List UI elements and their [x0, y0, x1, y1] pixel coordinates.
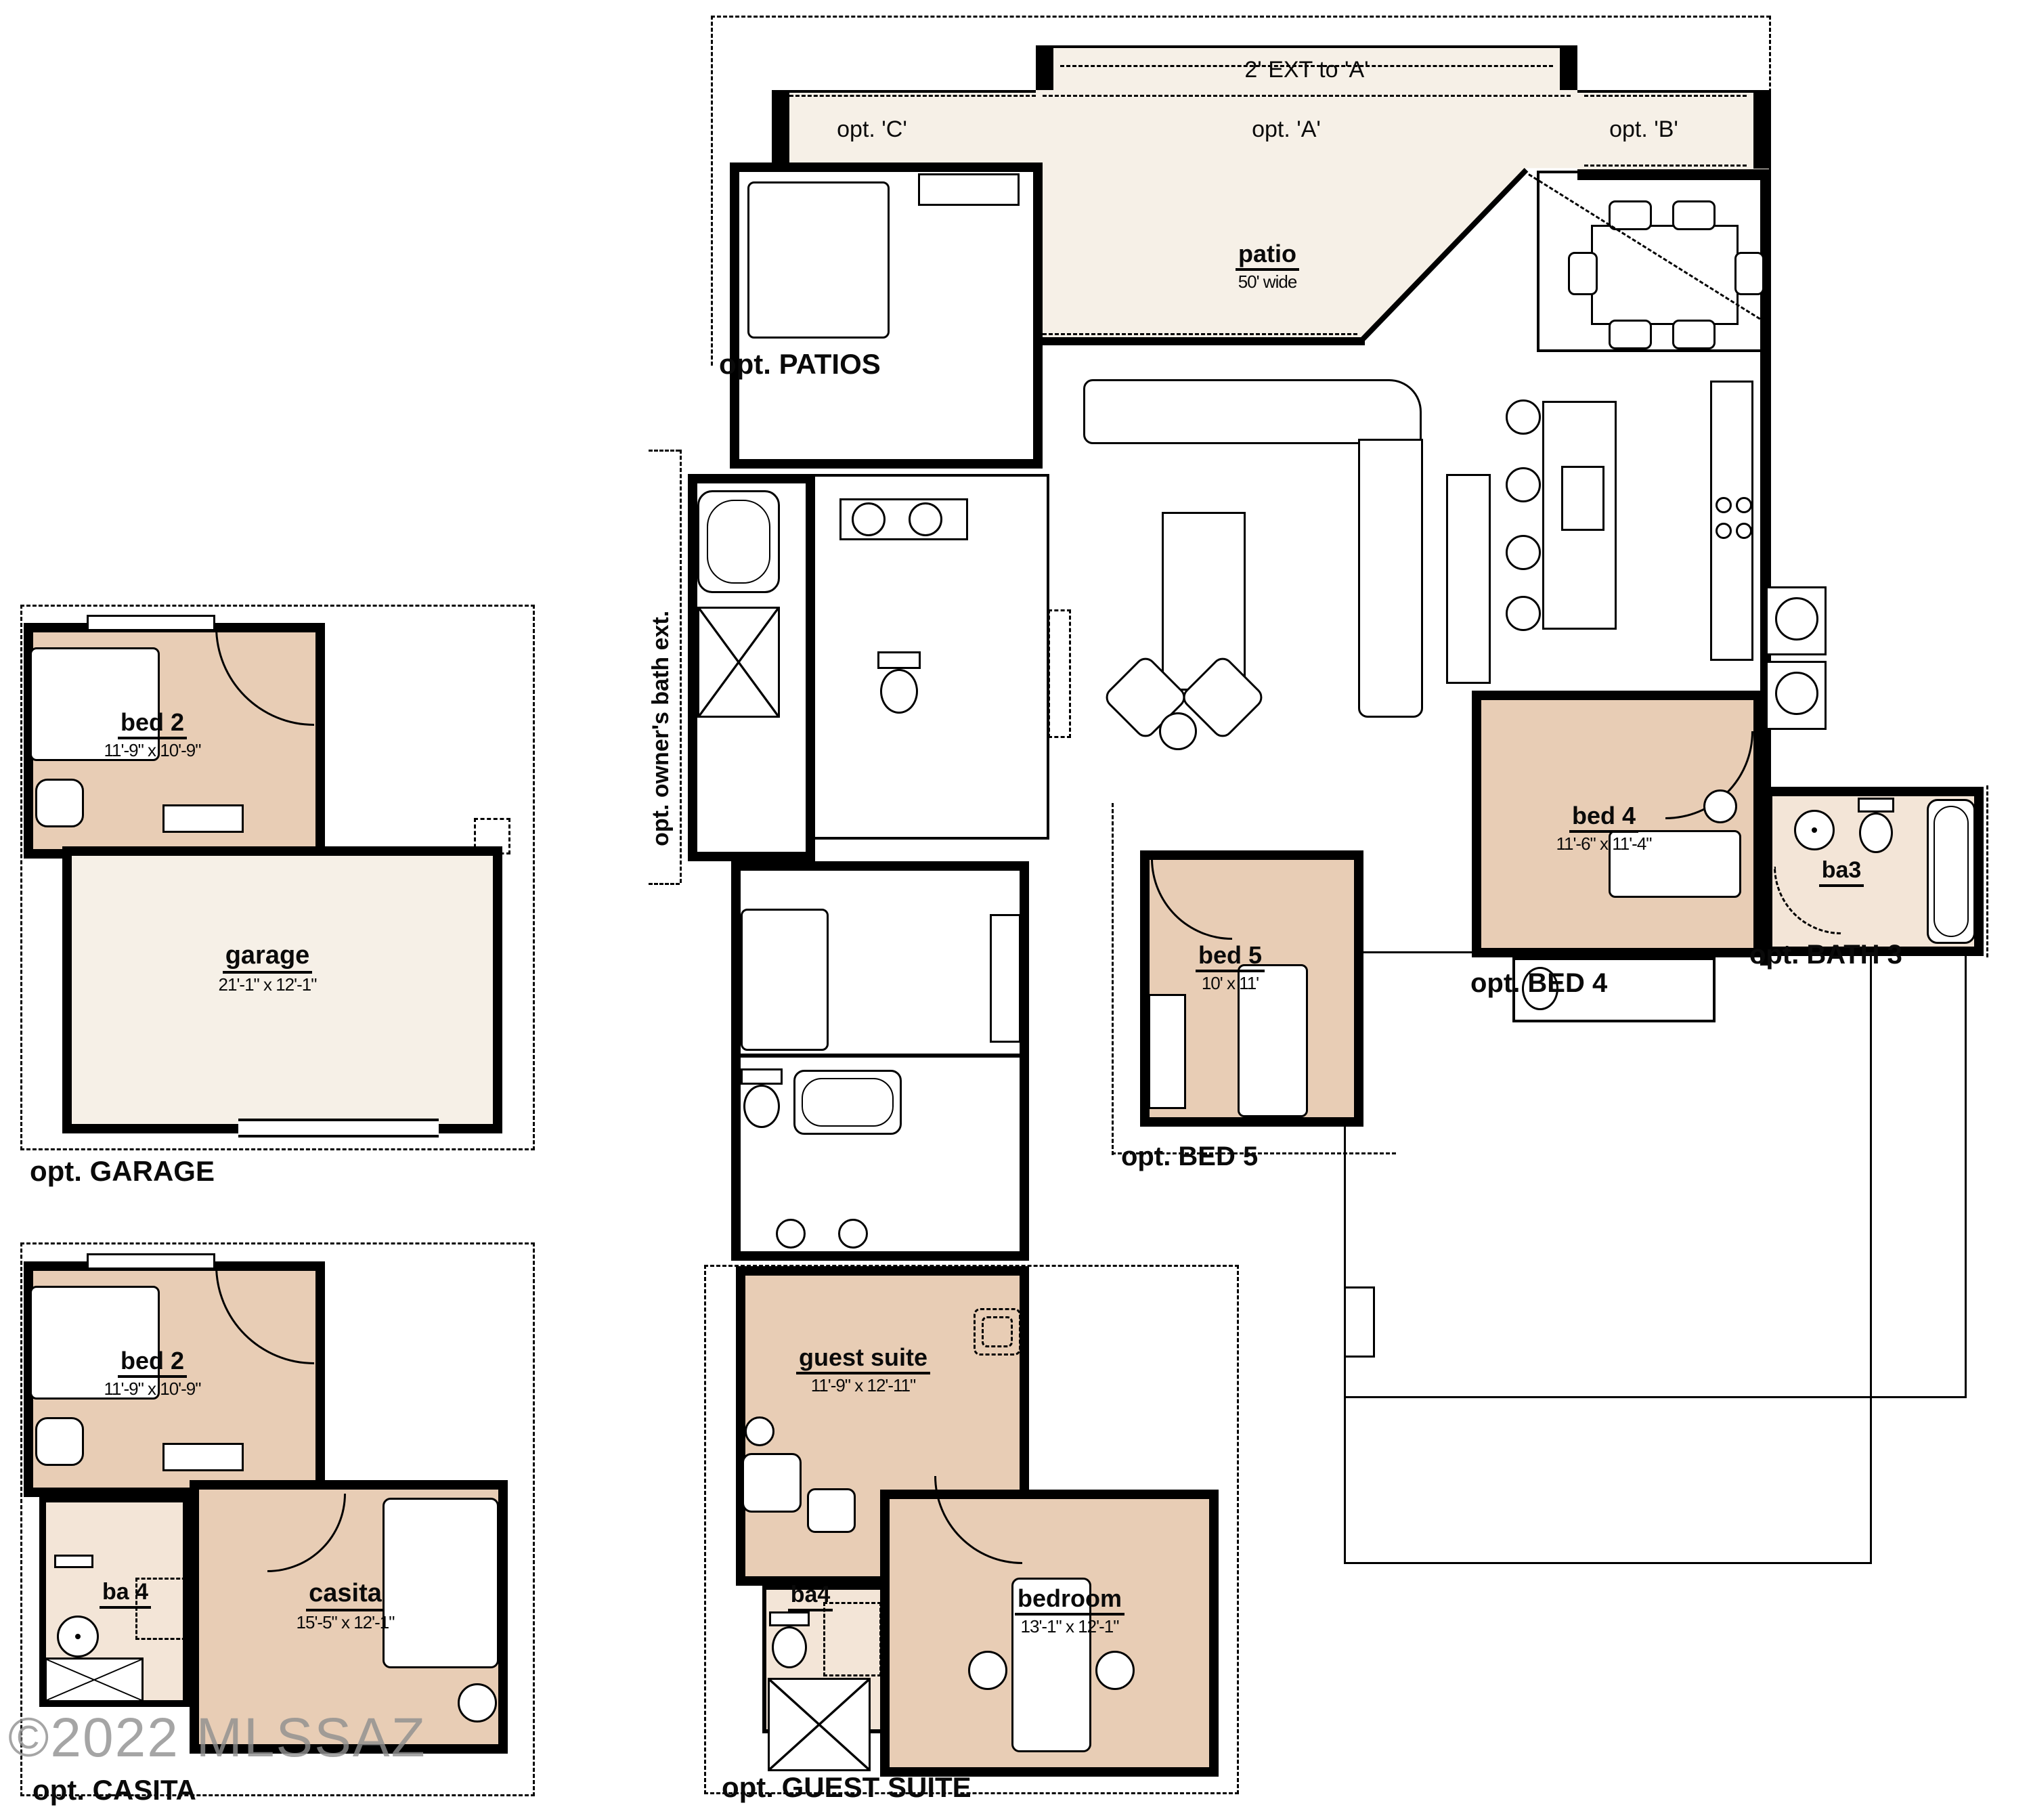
bed5-name: bed 5: [1196, 942, 1265, 972]
sofa-symbol: [1358, 439, 1423, 718]
bed2-garage-label: bed 2 11'-9" x 10'-9": [64, 710, 240, 760]
round-table-symbol: [1159, 712, 1197, 750]
opt-b-label: opt. 'B': [1576, 116, 1711, 143]
washer-drum-symbol: [1775, 597, 1818, 641]
toilet-bowl-symbol: [880, 669, 918, 714]
bed4-name: bed 4: [1569, 803, 1638, 833]
cooktop-burner-symbol: [1736, 497, 1752, 513]
ba3-name: ba3: [1819, 859, 1864, 887]
opt-guest-suite-label: opt. GUEST SUITE: [722, 1771, 971, 1804]
bed2-casita-dims: 11'-9" x 10'-9": [64, 1380, 240, 1398]
island-sink-symbol: [1561, 466, 1604, 531]
casita-name: casita: [306, 1580, 385, 1611]
shower-symbol: [697, 607, 780, 718]
bed5-dims: 10' x 11': [1156, 974, 1305, 993]
dining-table-symbol: [1591, 225, 1739, 325]
bed5-label: bed 5 10' x 11': [1156, 942, 1305, 993]
patio-wall: [1036, 337, 1365, 345]
bathtub-inner: [802, 1078, 894, 1127]
cooktop-burner-symbol: [1736, 523, 1752, 539]
dining-chair-symbol: [1609, 200, 1652, 230]
guest-suite-dims: 11'-9" x 12'-11": [782, 1377, 944, 1395]
sink-symbol: [776, 1219, 806, 1249]
dining-chair-symbol: [1568, 252, 1598, 295]
dryer-drum-symbol: [1775, 672, 1818, 715]
console-table-symbol: [1446, 474, 1491, 684]
nightstand-symbol: [1703, 789, 1737, 823]
bathtub-inner: [1934, 806, 1969, 937]
dash-line: [789, 95, 1036, 97]
house-footprint-outline: [1344, 951, 1872, 1564]
bed4-dims: 11'-6" x 11'-4": [1529, 835, 1678, 853]
bed4-label: bed 4 11'-6" x 11'-4": [1529, 803, 1678, 853]
option-boundary: [649, 450, 680, 452]
cooktop-burner-symbol: [1716, 497, 1732, 513]
wall: [731, 1054, 1029, 1058]
toilet-bowl-symbol: [1859, 812, 1893, 853]
guest-suite-label: guest suite 11'-9" x 12'-11": [782, 1345, 944, 1395]
wall: [772, 90, 789, 169]
mls-watermark: ©2022 MLSSAZ: [8, 1706, 427, 1770]
floor-plan: 2' EXT to 'A' opt. 'C' opt. 'A' opt. 'B'…: [0, 0, 2031, 1820]
media-wall-symbol: [1048, 609, 1071, 738]
sink-drain: [1812, 827, 1817, 833]
option-boundary: [680, 450, 682, 883]
bed2-casita-name: bed 2: [118, 1348, 187, 1378]
opt-casita-label: opt. CASITA: [32, 1774, 196, 1806]
option-boundary: [711, 16, 1770, 18]
casita-label: casita 15'-5" x 12'-1": [261, 1580, 430, 1632]
dining-chair-symbol: [1672, 320, 1716, 349]
dash-line: [1584, 95, 1747, 97]
bed2-casita-label: bed 2 11'-9" x 10'-9": [64, 1348, 240, 1398]
patio-size: 50' wide: [1200, 273, 1335, 291]
opt-c-label: opt. 'C': [804, 116, 940, 143]
guest-suite-name: guest suite: [796, 1345, 930, 1374]
dash-line: [789, 165, 1036, 167]
bed-symbol: [741, 909, 829, 1051]
patio-name: patio: [1236, 241, 1299, 271]
kitchen-counter-symbol: [1710, 381, 1753, 661]
garage-dims: 21'-1" x 12'-1": [179, 976, 355, 994]
bathtub-inner: [707, 500, 770, 584]
ba4-guest-label: ba4: [770, 1583, 851, 1611]
bar-stool-symbol: [1506, 535, 1541, 570]
bar-stool-symbol: [1506, 399, 1541, 435]
ba4-casita-name: ba 4: [100, 1580, 151, 1609]
bar-stool-symbol: [1506, 467, 1541, 502]
bedroom-label: bedroom 13'-1" x 12'-1": [975, 1586, 1164, 1636]
option-boundary: [1986, 785, 1988, 957]
option-boundary: [711, 16, 713, 366]
opt-garage-label: opt. GARAGE: [30, 1155, 215, 1188]
sink-symbol: [852, 502, 886, 536]
ba4-guest-name: ba4: [788, 1583, 833, 1611]
dash-line: [1043, 333, 1357, 335]
wall: [1036, 45, 1053, 90]
ext-label: 2' EXT to 'A': [1171, 57, 1442, 83]
bed2-garage-dims: 11'-9" x 10'-9": [64, 741, 240, 760]
water-heater-symbol: [474, 818, 510, 854]
opt-patios-label: opt. PATIOS: [719, 348, 881, 381]
opt-bed5-label: opt. BED 5: [1121, 1142, 1258, 1172]
dining-chair-symbol: [1672, 200, 1716, 230]
ba3-label: ba3: [1801, 859, 1882, 887]
toilet-tank-symbol: [877, 651, 921, 669]
dining-chair-symbol: [1609, 320, 1652, 349]
dresser-symbol: [990, 914, 1021, 1043]
opt-owners-bath-ext-text: opt. owner's bath ext.: [648, 611, 674, 846]
sink-symbol: [838, 1219, 868, 1249]
garage-boundary: [20, 605, 535, 1150]
bed2-garage-name: bed 2: [118, 710, 187, 739]
opt-bath3-label: opt. BATH 3: [1749, 940, 1902, 970]
dining-chair-symbol: [1734, 252, 1764, 295]
garage-label: garage 21'-1" x 12'-1": [179, 942, 355, 994]
garage-name: garage: [223, 942, 313, 974]
patio-label: patio 50' wide: [1200, 241, 1335, 291]
toilet-bowl-symbol: [743, 1085, 780, 1128]
bed-symbol: [747, 181, 890, 339]
option-boundary: [1112, 803, 1114, 1155]
bedroom-dims: 13'-1" x 12'-1": [975, 1618, 1164, 1636]
wall: [1577, 169, 1771, 180]
desk-symbol: [1148, 994, 1186, 1109]
casita-dims: 15'-5" x 12'-1": [261, 1613, 430, 1632]
sofa-symbol: [1083, 379, 1422, 444]
bar-stool-symbol: [1506, 596, 1541, 631]
option-boundary: [1769, 16, 1771, 354]
opt-owners-bath-ext-label: opt. owner's bath ext.: [649, 569, 674, 888]
porch-niche-outline: [1344, 1286, 1375, 1358]
dash-line: [1043, 95, 1571, 97]
dresser-symbol: [918, 173, 1020, 206]
wall: [1560, 45, 1577, 90]
cooktop-burner-symbol: [1716, 523, 1732, 539]
toilet-tank-symbol: [741, 1068, 783, 1085]
dash-line: [1584, 165, 1747, 167]
ba4-casita-label: ba 4: [81, 1580, 169, 1609]
toilet-tank-symbol: [1858, 798, 1894, 812]
sink-symbol: [909, 502, 942, 536]
opt-a-label: opt. 'A': [1219, 116, 1354, 143]
bedroom-name: bedroom: [1015, 1586, 1124, 1616]
opt-bed4-label: opt. BED 4: [1470, 968, 1607, 999]
